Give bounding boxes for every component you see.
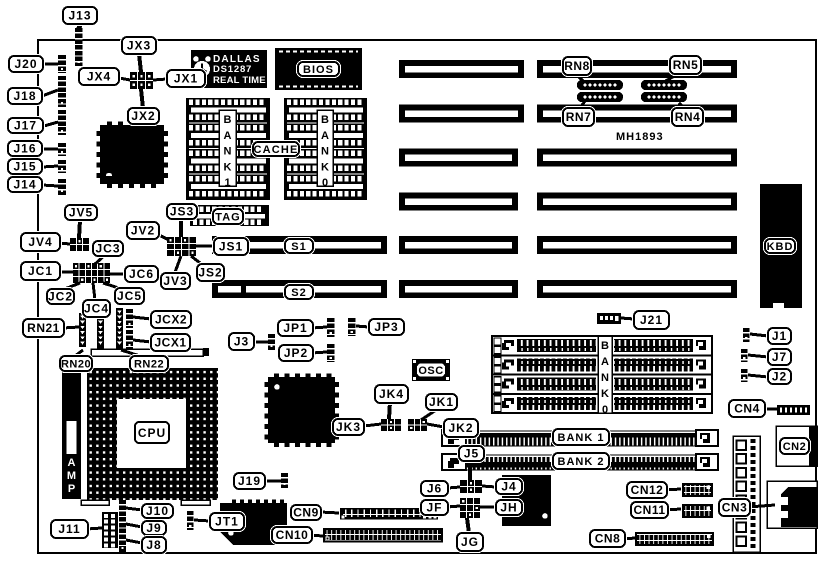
svg-text:JV3: JV3: [163, 274, 187, 288]
svg-text:JX4: JX4: [87, 70, 111, 84]
svg-text:RN5: RN5: [673, 58, 699, 72]
svg-text:JS1: JS1: [219, 240, 243, 254]
svg-text:CN2: CN2: [783, 441, 807, 453]
svg-text:J5: J5: [464, 447, 479, 461]
svg-text:1: 1: [224, 177, 230, 189]
svg-text:JH: JH: [500, 501, 517, 515]
svg-text:S1: S1: [291, 241, 306, 253]
svg-text:BANK 2: BANK 2: [558, 456, 605, 468]
svg-text:0: 0: [602, 404, 608, 416]
svg-text:J4: J4: [501, 480, 516, 494]
svg-text:JX3: JX3: [127, 39, 151, 53]
svg-text:N: N: [601, 372, 609, 384]
svg-text:KBD: KBD: [767, 241, 794, 253]
svg-text:JP3: JP3: [374, 320, 398, 334]
svg-text:A: A: [68, 457, 76, 469]
svg-text:RN4: RN4: [675, 110, 701, 124]
svg-text:JX1: JX1: [174, 72, 198, 86]
svg-text:JC3: JC3: [95, 242, 120, 256]
svg-text:JC2: JC2: [48, 290, 73, 304]
svg-text:J8: J8: [146, 538, 161, 552]
svg-text:TAG: TAG: [215, 212, 240, 224]
svg-text:JT1: JT1: [215, 515, 239, 529]
svg-text:J9: J9: [146, 521, 161, 535]
svg-text:J17: J17: [14, 119, 37, 133]
svg-text:K: K: [224, 161, 232, 173]
svg-text:A: A: [224, 130, 232, 142]
svg-text:CN10: CN10: [276, 528, 309, 542]
svg-text:A: A: [321, 130, 329, 142]
svg-text:B: B: [224, 114, 232, 126]
svg-text:JS3: JS3: [170, 205, 194, 219]
svg-text:CN4: CN4: [734, 402, 760, 416]
svg-text:J2: J2: [772, 370, 787, 384]
svg-text:JK1: JK1: [429, 395, 454, 409]
svg-text:J11: J11: [58, 522, 80, 536]
svg-text:P: P: [68, 483, 75, 495]
svg-text:JC4: JC4: [84, 302, 109, 316]
svg-text:S2: S2: [291, 287, 306, 299]
svg-text:JP2: JP2: [284, 346, 308, 360]
svg-text:J19: J19: [238, 474, 261, 488]
svg-text:J20: J20: [14, 57, 37, 71]
svg-text:BANK 1: BANK 1: [558, 432, 605, 444]
svg-text:CN3: CN3: [722, 501, 748, 515]
svg-text:CACHE: CACHE: [253, 144, 298, 156]
svg-text:JCX1: JCX1: [154, 336, 186, 350]
svg-text:JP1: JP1: [283, 321, 307, 335]
svg-text:RN22: RN22: [134, 359, 164, 371]
svg-text:CPU: CPU: [138, 426, 166, 440]
svg-text:J21: J21: [640, 313, 663, 327]
svg-text:0: 0: [322, 177, 328, 189]
svg-text:RN8: RN8: [564, 59, 590, 73]
svg-text:N: N: [224, 146, 232, 158]
svg-text:JC1: JC1: [28, 264, 53, 278]
svg-text:JV5: JV5: [69, 206, 93, 220]
svg-text:K: K: [601, 388, 609, 400]
svg-text:JCX2: JCX2: [155, 313, 187, 327]
svg-text:JG: JG: [461, 535, 479, 549]
svg-text:JC6: JC6: [129, 267, 154, 281]
svg-text:JK4: JK4: [379, 387, 404, 401]
svg-text:J6: J6: [427, 482, 442, 496]
svg-text:RN7: RN7: [566, 110, 592, 124]
svg-text:J15: J15: [13, 160, 36, 174]
svg-text:JC5: JC5: [117, 289, 142, 303]
svg-text:JS2: JS2: [198, 266, 222, 280]
svg-text:B: B: [601, 340, 609, 352]
svg-text:J1: J1: [772, 329, 787, 343]
svg-text:J7: J7: [772, 350, 787, 364]
svg-text:A: A: [601, 356, 609, 368]
svg-text:RN21: RN21: [27, 321, 60, 335]
svg-text:N: N: [321, 146, 329, 158]
svg-text:CN8: CN8: [595, 532, 621, 546]
svg-text:CN11: CN11: [633, 503, 665, 517]
svg-text:J3: J3: [234, 335, 249, 349]
svg-text:B: B: [321, 114, 329, 126]
svg-text:J16: J16: [13, 142, 36, 156]
svg-text:BIOS: BIOS: [303, 64, 334, 76]
svg-text:RN20: RN20: [61, 359, 91, 371]
svg-text:JK3: JK3: [336, 420, 361, 434]
svg-text:OSC: OSC: [418, 365, 443, 377]
svg-text:J18: J18: [13, 89, 36, 103]
svg-text:M: M: [67, 470, 76, 482]
svg-text:CN12: CN12: [631, 483, 664, 497]
svg-text:JV2: JV2: [131, 224, 155, 238]
svg-text:MH1893: MH1893: [616, 131, 664, 143]
svg-text:JX2: JX2: [131, 109, 155, 123]
svg-text:JF: JF: [426, 501, 442, 515]
svg-text:K: K: [321, 161, 329, 173]
svg-text:J14: J14: [13, 178, 36, 192]
svg-text:J10: J10: [146, 504, 169, 518]
svg-text:JK2: JK2: [448, 421, 473, 435]
svg-text:JV4: JV4: [28, 235, 52, 249]
svg-text:REAL TIME: REAL TIME: [213, 75, 266, 86]
svg-text:J13: J13: [68, 9, 91, 23]
svg-text:CN9: CN9: [293, 506, 319, 520]
svg-text:DS1287: DS1287: [213, 64, 252, 75]
